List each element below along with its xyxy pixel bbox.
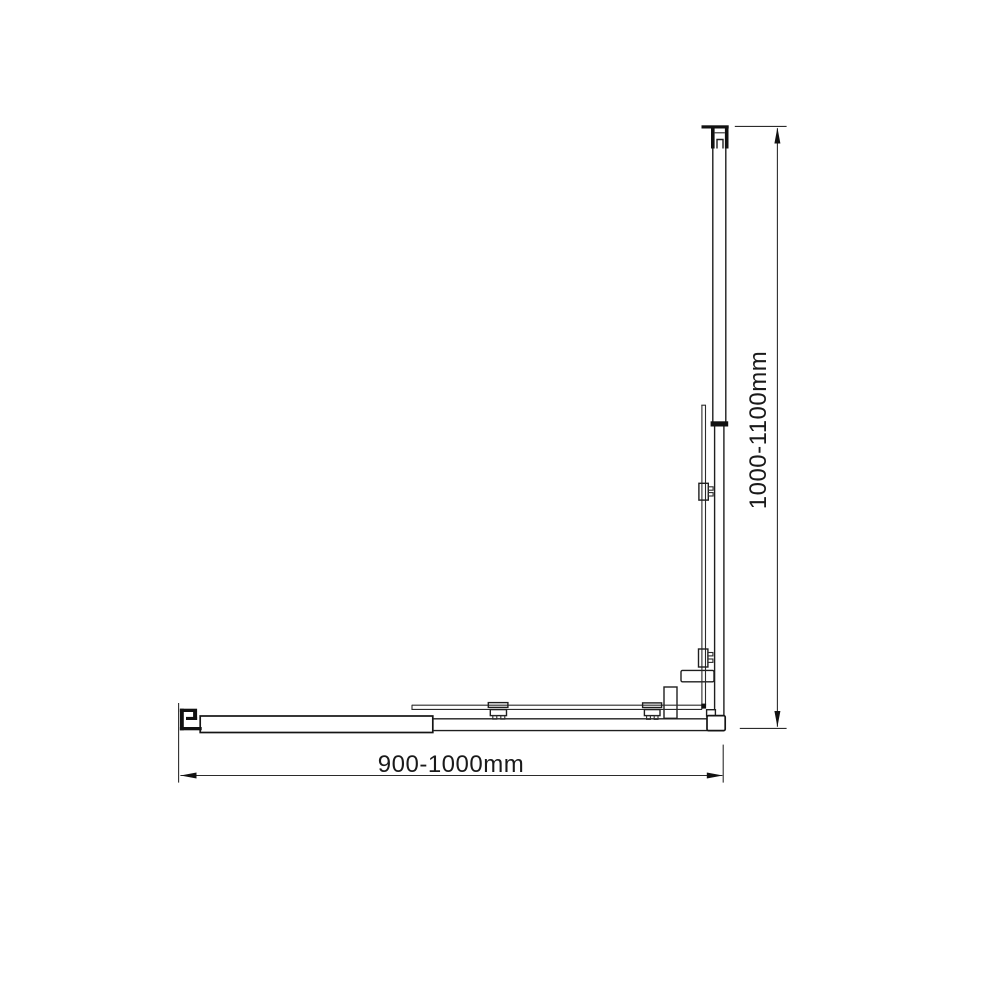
left-arrowhead-icon: [181, 773, 197, 779]
bottom-door-panel-body: [200, 716, 433, 733]
horizontal-dimension: 900-1000mm: [179, 703, 724, 783]
top-wall-bracket: [702, 125, 729, 148]
corner-foot-body: [707, 716, 725, 731]
shower-screen-plan-drawing: 1000-1100mm 900-1000mm: [0, 0, 1000, 1000]
vertical-support-bar: [711, 149, 729, 716]
support-bar-cap: [711, 421, 729, 426]
corner-support-bracket-body: [664, 687, 677, 718]
rail-clamp-left-foot-2: [501, 716, 505, 720]
top-wall-bracket-notch: [717, 140, 723, 149]
bottom-rail: [433, 719, 711, 731]
vertical-dimension: 1000-1100mm: [735, 126, 787, 728]
up-arrowhead-icon: [774, 128, 780, 144]
left-wall-bracket-bottom-bar: [180, 727, 202, 730]
corner-support-bracket: [664, 687, 677, 718]
horizontal-dimension-label: 900-1000mm: [378, 751, 524, 778]
glass-clamp-lower-body: [699, 649, 708, 667]
right-arrowhead-icon: [707, 773, 723, 779]
glass-clamp-upper-tab-1: [708, 487, 713, 490]
glass-corner-joint: [701, 704, 706, 709]
glass-clamp-upper-body: [699, 483, 708, 500]
vertical-dimension-label: 1000-1100mm: [745, 351, 772, 509]
rail-clamp-left-body: [490, 710, 506, 716]
door-handle-body: [681, 670, 714, 681]
corner-foot-bracket: [707, 710, 726, 731]
door-handle: [681, 670, 714, 681]
vertical-glass-panel: [701, 405, 706, 709]
bottom-door-panel: [200, 716, 433, 733]
glass-clamp-upper-tab-2: [708, 493, 713, 496]
left-wall-bracket: [180, 709, 202, 731]
glass-clamp-lower-tab-2: [708, 659, 713, 662]
rail-clamp-left-foot-1: [493, 716, 497, 720]
top-wall-bracket-right-wall: [725, 128, 729, 149]
top-wall-bracket-left-wall: [711, 128, 715, 149]
down-arrowhead-icon: [774, 711, 780, 727]
rail-clamp-right-body: [644, 710, 660, 716]
left-wall-bracket-middle-bar: [186, 717, 197, 720]
glass-clamp-lower-tab-1: [708, 653, 713, 656]
top-wall-bracket-plate: [702, 125, 729, 128]
